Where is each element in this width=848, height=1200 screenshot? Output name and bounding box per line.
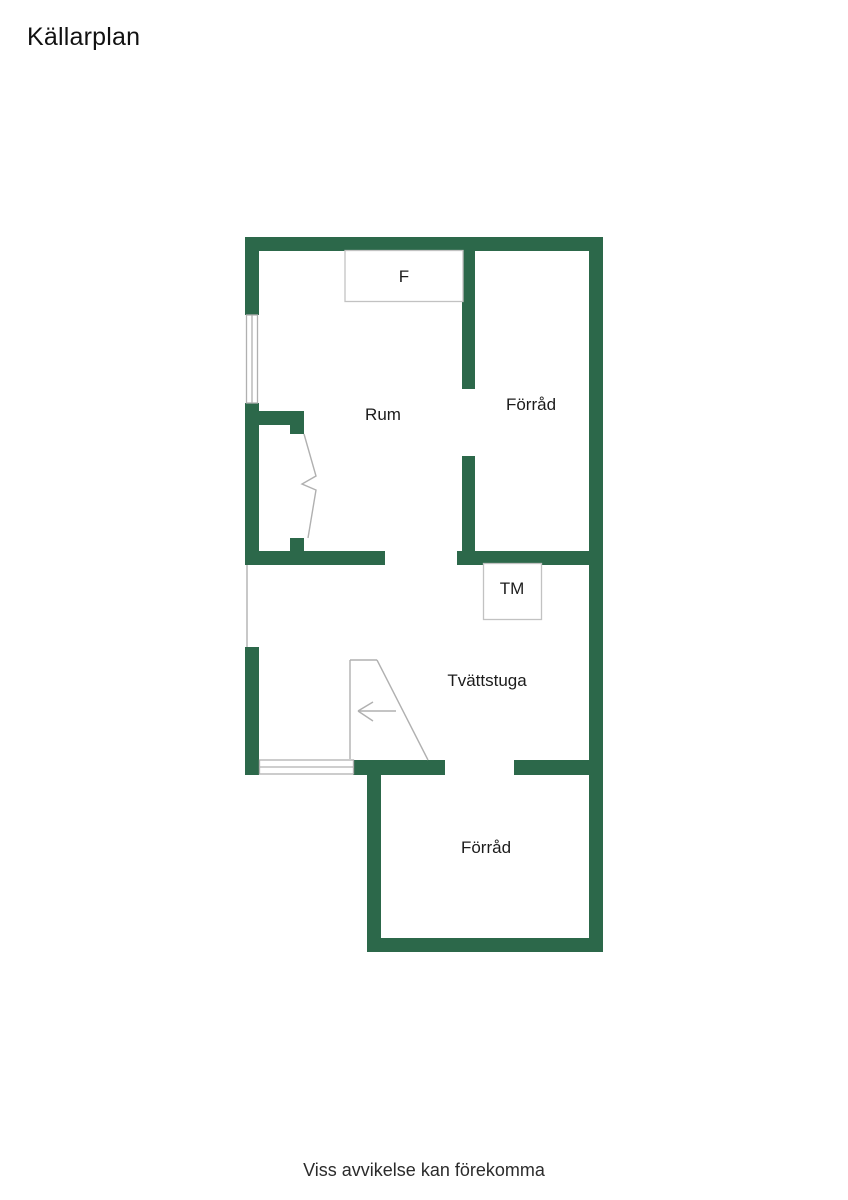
floorplan-page: Källarplan FTMRumFörrådTvättstugaFörråd … bbox=[0, 0, 848, 1200]
door-leaf bbox=[302, 434, 316, 538]
wall-tvatt-bottom-right bbox=[514, 760, 603, 775]
wall-tvatt-bottom-left bbox=[353, 760, 445, 775]
room-label-forrad-top: Förråd bbox=[506, 395, 556, 414]
room-label-rum: Rum bbox=[365, 405, 401, 424]
room-label-forrad-bottom: Förråd bbox=[461, 838, 511, 857]
washer-box-label: TM bbox=[500, 579, 525, 598]
room-label-tvattstuga: Tvättstuga bbox=[447, 671, 527, 690]
wall-bottomroom-left bbox=[367, 760, 381, 952]
stair-arrow-lower bbox=[358, 711, 373, 721]
wall-bottom bbox=[367, 938, 603, 952]
stair-arrow-upper bbox=[358, 702, 373, 711]
disclaimer-caption: Viss avvikelse kan förekomma bbox=[0, 1160, 848, 1181]
stair-edge-diag bbox=[377, 660, 428, 760]
wall-door-jamb-top bbox=[290, 425, 304, 434]
wall-top bbox=[245, 237, 603, 251]
wall-door-head bbox=[259, 411, 304, 425]
wall-door-jamb-bottom bbox=[290, 538, 304, 551]
wall-right bbox=[589, 237, 603, 952]
wall-left-lower bbox=[245, 647, 259, 775]
wall-band-left bbox=[245, 551, 385, 565]
wall-divider-upper bbox=[462, 251, 475, 389]
floorplan-drawing: FTMRumFörrådTvättstugaFörråd bbox=[0, 0, 848, 1200]
wall-divider-lower bbox=[462, 456, 475, 551]
fridge-box-label: F bbox=[399, 267, 409, 286]
wall-left-mid bbox=[245, 403, 259, 565]
wall-left-upper bbox=[245, 237, 259, 315]
